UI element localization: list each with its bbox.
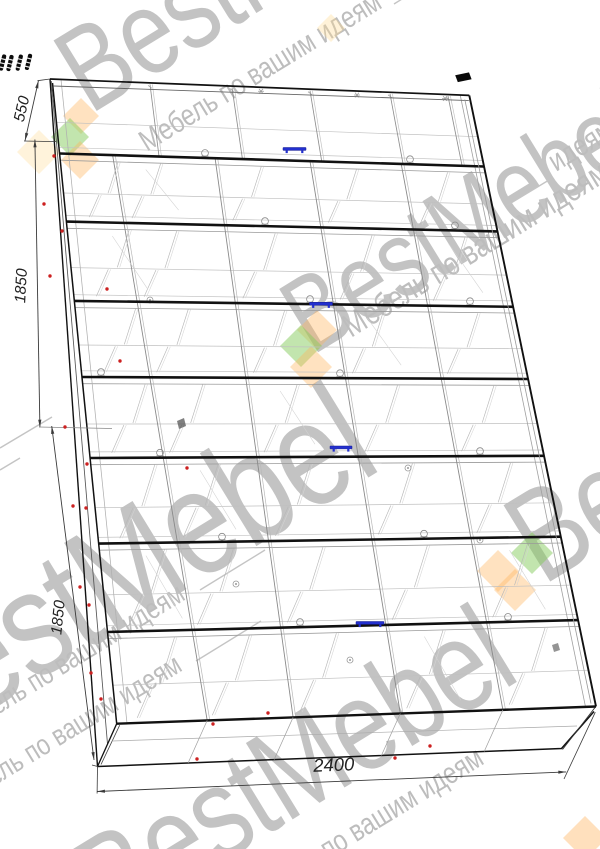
svg-text:1850: 1850 [12,268,31,304]
svg-text:1850: 1850 [48,599,69,635]
svg-text:2400: 2400 [312,753,356,776]
